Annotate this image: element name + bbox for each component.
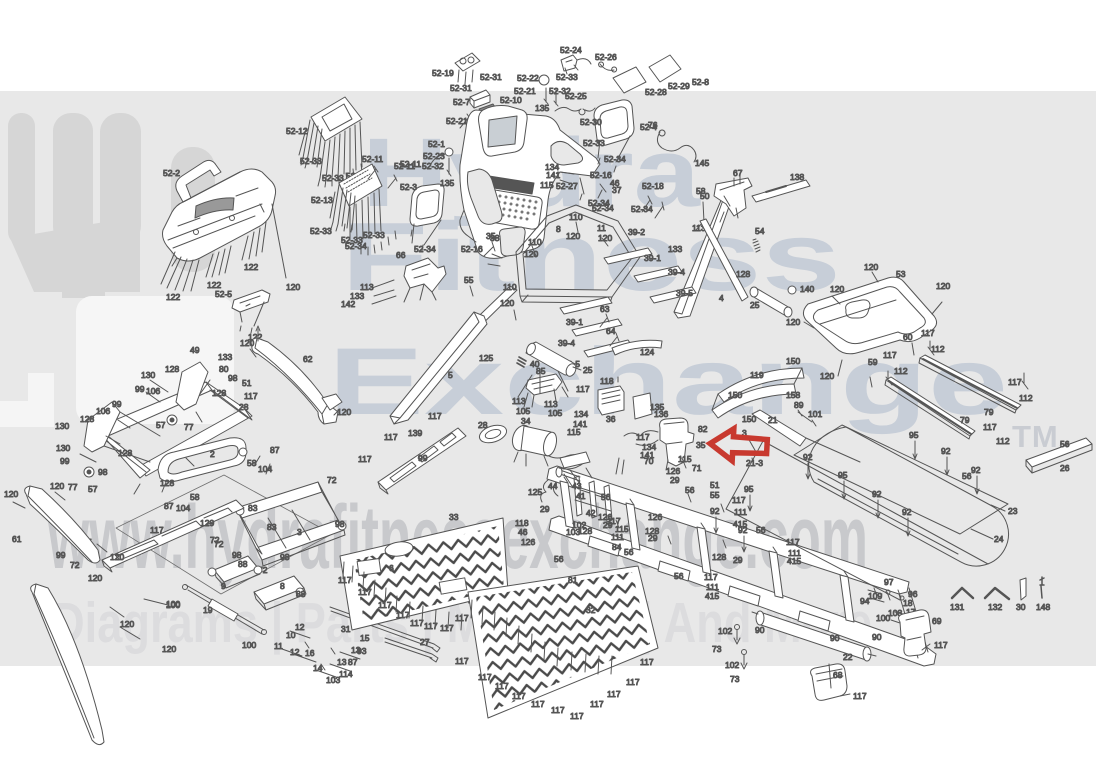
svg-text:51: 51 (710, 480, 720, 490)
svg-text:130: 130 (56, 443, 70, 453)
svg-text:100: 100 (242, 640, 256, 650)
svg-text:106: 106 (96, 406, 110, 416)
svg-text:73: 73 (712, 644, 722, 654)
svg-text:52-1: 52-1 (428, 139, 445, 149)
svg-text:128: 128 (80, 414, 94, 424)
svg-text:136: 136 (654, 409, 668, 419)
svg-text:128: 128 (578, 526, 592, 536)
svg-text:92: 92 (872, 489, 882, 499)
svg-text:120: 120 (566, 231, 580, 241)
svg-text:112: 112 (1019, 393, 1033, 403)
svg-text:52-19: 52-19 (432, 68, 454, 78)
svg-text:117: 117 (607, 689, 621, 699)
svg-text:141: 141 (546, 170, 560, 180)
svg-text:158: 158 (786, 390, 800, 400)
svg-text:415: 415 (787, 556, 801, 566)
svg-text:37: 37 (612, 185, 622, 195)
svg-text:117: 117 (732, 495, 746, 505)
svg-text:44: 44 (548, 481, 558, 491)
svg-text:10: 10 (286, 630, 296, 640)
svg-text:62: 62 (303, 354, 313, 364)
svg-text:125: 125 (528, 487, 542, 497)
svg-text:117: 117 (455, 613, 469, 623)
svg-text:52-33: 52-33 (556, 72, 578, 82)
svg-text:119: 119 (750, 370, 764, 380)
svg-text:43: 43 (572, 481, 582, 491)
svg-text:5: 5 (448, 370, 453, 380)
svg-text:70: 70 (644, 456, 654, 466)
svg-text:117: 117 (983, 422, 997, 432)
svg-text:72: 72 (210, 535, 220, 545)
svg-text:128: 128 (212, 388, 226, 398)
svg-text:52-13: 52-13 (311, 195, 333, 205)
svg-text:36: 36 (606, 414, 616, 424)
svg-text:117: 117 (428, 411, 442, 421)
svg-text:106: 106 (146, 386, 160, 396)
svg-text:102: 102 (725, 660, 739, 670)
svg-text:126: 126 (648, 512, 662, 522)
svg-text:29: 29 (670, 475, 680, 485)
svg-text:56: 56 (685, 485, 695, 495)
svg-text:112: 112 (894, 366, 908, 376)
svg-text:126: 126 (521, 537, 535, 547)
svg-text:92: 92 (803, 452, 813, 462)
svg-text:39-4: 39-4 (668, 267, 685, 277)
svg-text:120: 120 (786, 317, 800, 327)
svg-text:56: 56 (554, 554, 564, 564)
svg-text:117: 117 (384, 432, 398, 442)
svg-text:11: 11 (274, 641, 283, 651)
svg-text:95: 95 (909, 430, 919, 440)
svg-text:139: 139 (408, 428, 422, 438)
svg-text:150: 150 (786, 356, 800, 366)
svg-text:63: 63 (600, 304, 610, 314)
svg-text:99: 99 (56, 550, 66, 560)
svg-text:117: 117 (704, 572, 718, 582)
svg-text:67: 67 (733, 168, 743, 178)
svg-text:117: 117 (396, 610, 410, 620)
svg-text:90: 90 (872, 632, 882, 642)
svg-text:39-2: 39-2 (628, 227, 645, 237)
svg-text:125: 125 (479, 353, 493, 363)
svg-text:87: 87 (270, 445, 280, 455)
svg-text:104: 104 (258, 464, 272, 474)
svg-text:120: 120 (864, 262, 878, 272)
svg-text:117: 117 (576, 384, 590, 394)
svg-text:99: 99 (112, 399, 122, 409)
svg-text:82: 82 (698, 424, 708, 434)
svg-text:73: 73 (730, 674, 740, 684)
svg-text:98: 98 (280, 552, 290, 562)
svg-text:112: 112 (931, 344, 945, 354)
svg-text:117: 117 (934, 640, 948, 650)
svg-text:90: 90 (755, 625, 765, 635)
svg-text:113: 113 (512, 396, 526, 406)
svg-text:100: 100 (166, 599, 180, 609)
svg-text:42: 42 (586, 508, 596, 518)
svg-text:52-11: 52-11 (362, 154, 383, 164)
svg-text:93: 93 (357, 646, 367, 656)
svg-text:72: 72 (70, 560, 80, 570)
svg-text:30: 30 (1016, 602, 1026, 612)
svg-text:52-22: 52-22 (517, 73, 539, 83)
svg-text:52-34: 52-34 (414, 244, 436, 254)
svg-text:117: 117 (626, 677, 640, 687)
svg-text:72: 72 (327, 475, 337, 485)
svg-text:142: 142 (341, 299, 355, 309)
svg-text:95: 95 (838, 470, 848, 480)
svg-text:98: 98 (98, 467, 108, 477)
svg-text:94: 94 (860, 596, 870, 606)
svg-text:92: 92 (738, 525, 748, 535)
svg-text:115: 115 (678, 454, 692, 464)
svg-text:68: 68 (833, 670, 843, 680)
svg-text:52-16: 52-16 (590, 170, 612, 180)
svg-text:120: 120 (500, 298, 514, 308)
svg-text:81: 81 (568, 575, 578, 585)
svg-text:129: 129 (200, 518, 214, 528)
svg-text:115: 115 (540, 180, 554, 190)
svg-text:148: 148 (1036, 602, 1050, 612)
svg-text:52-12: 52-12 (286, 126, 308, 136)
svg-text:79: 79 (984, 407, 994, 417)
svg-text:110: 110 (503, 282, 517, 292)
svg-text:117: 117 (478, 672, 492, 682)
svg-text:117: 117 (853, 691, 867, 701)
svg-text:134: 134 (574, 409, 588, 419)
svg-text:39-1: 39-1 (566, 317, 583, 327)
svg-text:122: 122 (244, 262, 258, 272)
svg-text:9: 9 (221, 581, 226, 591)
svg-text:3: 3 (297, 527, 302, 537)
svg-text:97: 97 (884, 577, 894, 587)
svg-text:100: 100 (876, 613, 890, 623)
svg-text:95: 95 (744, 484, 754, 494)
svg-text:52-3: 52-3 (400, 182, 417, 192)
svg-text:120: 120 (240, 338, 254, 348)
svg-text:117: 117 (640, 657, 654, 667)
svg-text:35: 35 (486, 231, 496, 241)
svg-text:120: 120 (50, 481, 64, 491)
svg-text:84: 84 (612, 542, 622, 552)
svg-text:117: 117 (424, 621, 438, 631)
svg-text:133: 133 (218, 352, 232, 362)
svg-text:52-10: 52-10 (500, 95, 522, 105)
svg-text:66: 66 (396, 250, 406, 260)
svg-text:98: 98 (228, 373, 238, 383)
svg-text:92: 92 (941, 446, 951, 456)
svg-text:52-33: 52-33 (300, 156, 322, 166)
svg-text:117: 117 (358, 587, 372, 597)
svg-text:138: 138 (790, 172, 804, 182)
svg-text:46: 46 (518, 527, 528, 537)
svg-text:8: 8 (280, 581, 285, 591)
svg-text:117: 117 (244, 391, 258, 401)
svg-text:52-7: 52-7 (453, 97, 470, 107)
svg-text:12: 12 (290, 647, 300, 657)
svg-text:117: 117 (636, 432, 650, 442)
svg-text:120: 120 (337, 407, 351, 417)
svg-text:109: 109 (868, 591, 882, 601)
svg-text:4: 4 (719, 293, 724, 303)
svg-text:8: 8 (556, 224, 561, 234)
svg-text:111: 111 (611, 532, 624, 542)
svg-text:117: 117 (551, 705, 565, 715)
svg-text:110: 110 (528, 237, 542, 247)
svg-text:79: 79 (960, 415, 970, 425)
svg-text:128: 128 (165, 364, 179, 374)
svg-text:117: 117 (410, 618, 424, 628)
svg-text:117: 117 (455, 656, 469, 666)
svg-text:117: 117 (1008, 377, 1022, 387)
svg-text:15: 15 (360, 633, 370, 643)
svg-text:117: 117 (512, 691, 526, 701)
svg-text:22: 22 (843, 652, 853, 662)
svg-text:88: 88 (296, 589, 306, 599)
svg-text:130: 130 (141, 370, 155, 380)
svg-text:99: 99 (418, 453, 428, 463)
svg-text:29: 29 (648, 533, 658, 543)
svg-text:52-8: 52-8 (692, 77, 709, 87)
svg-text:111: 111 (734, 507, 747, 517)
svg-text:2: 2 (210, 449, 215, 459)
svg-text:90: 90 (830, 633, 840, 643)
svg-text:120: 120 (162, 644, 176, 654)
svg-text:52-32: 52-32 (422, 161, 444, 171)
svg-text:99: 99 (60, 456, 70, 466)
svg-text:110: 110 (569, 212, 583, 222)
svg-text:56: 56 (1060, 439, 1070, 449)
svg-text:135: 135 (535, 103, 549, 113)
svg-text:28: 28 (239, 402, 249, 412)
svg-text:112: 112 (996, 436, 1010, 446)
svg-text:52-34: 52-34 (592, 203, 614, 213)
svg-text:77: 77 (184, 422, 194, 432)
svg-text:59: 59 (868, 357, 878, 367)
svg-text:52-11: 52-11 (400, 159, 421, 169)
svg-text:21: 21 (768, 415, 778, 425)
svg-text:TM: TM (1012, 419, 1059, 454)
svg-text:32: 32 (586, 605, 596, 615)
svg-text:102: 102 (718, 626, 732, 636)
svg-text:52-23: 52-23 (423, 151, 445, 161)
svg-text:71: 71 (692, 463, 702, 473)
svg-text:19: 19 (203, 605, 213, 615)
svg-text:26: 26 (1060, 463, 1070, 473)
svg-text:52-21: 52-21 (514, 86, 536, 96)
svg-text:55: 55 (464, 275, 474, 285)
svg-text:122: 122 (166, 292, 180, 302)
svg-text:57: 57 (156, 420, 166, 430)
svg-text:52-33: 52-33 (310, 226, 332, 236)
svg-text:117: 117 (358, 454, 372, 464)
svg-text:52-25: 52-25 (565, 91, 587, 101)
svg-text:56: 56 (601, 492, 611, 502)
svg-text:53: 53 (896, 269, 906, 279)
svg-text:128: 128 (712, 552, 726, 562)
svg-text:120: 120 (286, 282, 300, 292)
svg-text:85: 85 (536, 366, 546, 376)
svg-text:415: 415 (705, 591, 719, 601)
svg-text:114: 114 (339, 669, 353, 679)
svg-text:99: 99 (135, 384, 145, 394)
svg-text:117: 117 (378, 600, 392, 610)
svg-text:60: 60 (903, 332, 913, 342)
svg-text:39-5: 39-5 (676, 288, 693, 298)
svg-text:124: 124 (640, 347, 654, 357)
svg-text:150: 150 (728, 390, 742, 400)
svg-text:13: 13 (337, 657, 347, 667)
svg-text:117: 117 (531, 699, 545, 709)
svg-text:52-29: 52-29 (668, 81, 690, 91)
svg-text:52-31: 52-31 (480, 72, 502, 82)
svg-text:29: 29 (540, 504, 550, 514)
svg-text:52-31: 52-31 (450, 83, 472, 93)
svg-text:14: 14 (313, 663, 323, 673)
svg-text:130: 130 (55, 421, 69, 431)
svg-text:39-1: 39-1 (644, 253, 661, 263)
svg-text:25: 25 (583, 365, 593, 375)
svg-text:117: 117 (495, 681, 509, 691)
svg-text:120: 120 (110, 552, 124, 562)
svg-text:135: 135 (440, 178, 454, 188)
svg-text:27: 27 (420, 637, 430, 647)
svg-text:76: 76 (648, 120, 658, 130)
svg-text:103: 103 (326, 675, 340, 685)
svg-text:105: 105 (548, 408, 562, 418)
svg-text:87: 87 (164, 501, 174, 511)
svg-text:52-16: 52-16 (461, 244, 483, 254)
svg-text:115: 115 (567, 427, 581, 437)
svg-text:33: 33 (449, 512, 459, 522)
svg-text:52-28: 52-28 (645, 87, 667, 97)
svg-text:52-2: 52-2 (163, 168, 180, 178)
svg-text:77: 77 (68, 482, 78, 492)
svg-text:56: 56 (674, 571, 684, 581)
svg-text:55: 55 (710, 490, 720, 500)
svg-text:56: 56 (624, 547, 634, 557)
svg-text:117: 117 (338, 575, 352, 585)
svg-text:105: 105 (516, 406, 530, 416)
svg-text:12: 12 (295, 622, 305, 632)
svg-text:117: 117 (570, 711, 584, 721)
svg-text:54: 54 (755, 226, 765, 236)
svg-text:52-5: 52-5 (215, 289, 232, 299)
svg-text:92: 92 (902, 507, 912, 517)
svg-text:57: 57 (88, 484, 98, 494)
svg-text:145: 145 (695, 158, 709, 168)
svg-text:52-24: 52-24 (560, 45, 582, 55)
svg-text:69: 69 (932, 616, 942, 626)
svg-text:120: 120 (120, 619, 134, 629)
svg-text:29: 29 (733, 555, 743, 565)
svg-text:52-18: 52-18 (642, 181, 664, 191)
svg-text:52-34: 52-34 (631, 204, 653, 214)
svg-text:89: 89 (794, 400, 804, 410)
svg-text:140: 140 (800, 284, 814, 294)
svg-text:132: 132 (988, 602, 1002, 612)
svg-text:11: 11 (597, 223, 606, 233)
svg-text:88: 88 (238, 559, 248, 569)
svg-text:117: 117 (150, 525, 164, 535)
svg-text:52-34: 52-34 (345, 241, 367, 251)
svg-text:120: 120 (524, 249, 538, 259)
svg-text:52-34: 52-34 (604, 154, 626, 164)
svg-text:104: 104 (176, 503, 190, 513)
svg-text:64: 64 (606, 326, 616, 336)
svg-text:98: 98 (335, 519, 345, 529)
svg-text:120: 120 (4, 489, 18, 499)
svg-text:120: 120 (820, 371, 834, 381)
svg-text:56: 56 (962, 471, 972, 481)
svg-text:31: 31 (341, 624, 351, 634)
svg-text:6: 6 (389, 563, 394, 573)
svg-text:117: 117 (921, 328, 935, 338)
svg-text:117: 117 (590, 699, 604, 709)
svg-text:61: 61 (12, 534, 22, 544)
svg-text:118: 118 (600, 376, 614, 386)
svg-text:52-30: 52-30 (580, 117, 602, 127)
svg-text:92: 92 (971, 465, 981, 475)
svg-text:52-33: 52-33 (363, 230, 385, 240)
svg-text:87: 87 (348, 657, 358, 667)
svg-text:24: 24 (994, 534, 1004, 544)
svg-text:58: 58 (696, 186, 706, 196)
svg-text:128: 128 (736, 269, 750, 279)
svg-text:131: 131 (950, 602, 964, 612)
svg-text:25: 25 (750, 300, 760, 310)
svg-text:41: 41 (576, 491, 586, 501)
svg-text:52-21: 52-21 (446, 116, 468, 126)
svg-text:52-33: 52-33 (583, 138, 605, 148)
svg-text:39-4: 39-4 (558, 338, 575, 348)
svg-text:133: 133 (668, 244, 682, 254)
svg-text:83: 83 (248, 503, 258, 513)
svg-text:58: 58 (190, 492, 200, 502)
svg-text:128: 128 (160, 478, 174, 488)
svg-text:23: 23 (1008, 506, 1018, 516)
svg-text:56: 56 (756, 525, 766, 535)
svg-text:117: 117 (607, 516, 621, 526)
svg-text:120: 120 (936, 281, 950, 291)
svg-text:117: 117 (883, 350, 897, 360)
svg-text:92: 92 (710, 506, 720, 516)
svg-text:128: 128 (118, 448, 132, 458)
svg-text:49: 49 (190, 345, 200, 355)
svg-text:117: 117 (440, 623, 454, 633)
svg-text:83: 83 (267, 522, 277, 532)
svg-text:120: 120 (88, 573, 102, 583)
svg-text:34: 34 (521, 416, 531, 426)
svg-text:52-26: 52-26 (595, 52, 617, 62)
svg-text:35: 35 (696, 440, 706, 450)
svg-text:101: 101 (808, 409, 822, 419)
svg-text:51: 51 (242, 378, 252, 388)
svg-text:16: 16 (305, 648, 315, 658)
svg-text:120: 120 (830, 284, 844, 294)
svg-text:28: 28 (478, 420, 488, 430)
